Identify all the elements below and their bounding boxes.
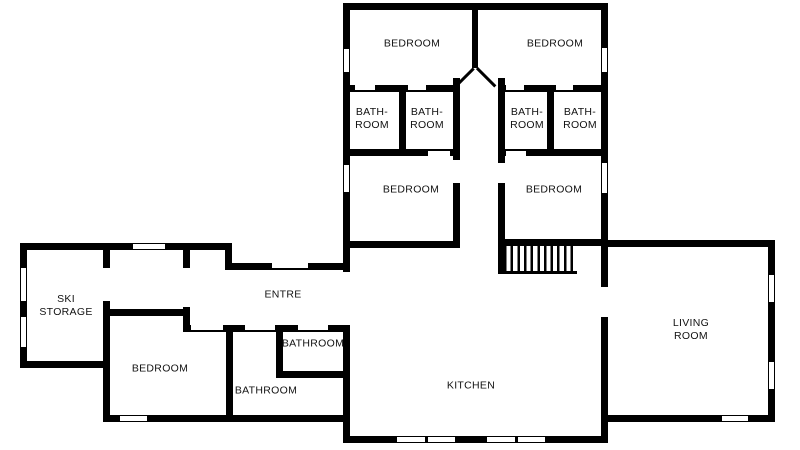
exterior-wall <box>601 415 775 422</box>
room-label-bathroom-small: BATHROOM <box>282 338 344 351</box>
window <box>518 436 545 443</box>
room-label-bathroom-3: BATH-ROOM <box>510 106 544 132</box>
entrance-door-opening <box>272 263 308 270</box>
interior-wall <box>343 241 460 248</box>
room-label-bathroom-2: BATH-ROOM <box>410 106 444 132</box>
room-label-ski-storage: SKISTORAGE <box>39 293 92 319</box>
exterior-wall <box>601 240 773 247</box>
door-swing <box>476 67 496 87</box>
interior-wall <box>103 309 190 316</box>
room-label-bathroom-4: BATH-ROOM <box>563 106 597 132</box>
door-opening <box>506 85 524 92</box>
interior-wall <box>472 3 478 68</box>
room-label-entre: ENTRE <box>264 289 301 302</box>
window <box>397 436 425 443</box>
window <box>768 362 775 389</box>
interior-wall <box>399 85 406 156</box>
door-opening <box>191 325 223 332</box>
room-label-bedroom-top-left: BEDROOM <box>384 38 440 51</box>
room-label-kitchen: KITCHEN <box>447 380 495 393</box>
floor-plan: BEDROOM BEDROOM BATH-ROOM BATH-ROOM BATH… <box>0 0 800 450</box>
exterior-wall <box>343 436 608 443</box>
window <box>428 436 455 443</box>
exterior-wall <box>20 361 110 368</box>
window <box>722 415 748 422</box>
window <box>120 415 147 422</box>
door-opening <box>556 85 573 92</box>
exterior-wall <box>20 243 232 250</box>
exterior-wall <box>20 243 27 368</box>
staircase-edge <box>504 271 577 274</box>
door-opening <box>245 325 275 332</box>
door-opening <box>355 85 375 92</box>
window <box>601 48 608 72</box>
room-label-bathroom-large: BATHROOM <box>235 385 297 398</box>
window <box>343 165 350 192</box>
room-label-bathroom-1: BATH-ROOM <box>355 106 389 132</box>
room-label-bedroom-mid-right: BEDROOM <box>526 184 582 197</box>
exterior-wall <box>768 240 775 421</box>
window <box>133 243 165 250</box>
door-opening <box>183 268 190 307</box>
door-opening <box>103 268 110 301</box>
room-label-bedroom-west: BEDROOM <box>132 363 188 376</box>
window <box>601 163 608 193</box>
interior-wall <box>547 85 554 156</box>
door-opening <box>408 85 426 92</box>
door-opening <box>506 149 526 156</box>
door-opening <box>453 160 460 183</box>
room-label-bedroom-top-right: BEDROOM <box>527 38 583 51</box>
window <box>20 317 27 347</box>
exterior-wall <box>343 3 350 272</box>
interior-wall <box>276 371 350 378</box>
window <box>20 268 27 301</box>
interior-wall <box>226 325 233 421</box>
interior-wall <box>498 239 608 246</box>
door-opening <box>428 149 450 156</box>
door-opening <box>298 325 328 332</box>
window <box>768 275 775 302</box>
room-label-living-room: LIVINGROOM <box>673 317 709 343</box>
staircase <box>504 246 577 271</box>
window <box>487 436 515 443</box>
door-opening <box>498 163 505 183</box>
interior-wall <box>601 317 608 443</box>
room-label-bedroom-mid-left: BEDROOM <box>383 184 439 197</box>
window <box>343 49 350 72</box>
